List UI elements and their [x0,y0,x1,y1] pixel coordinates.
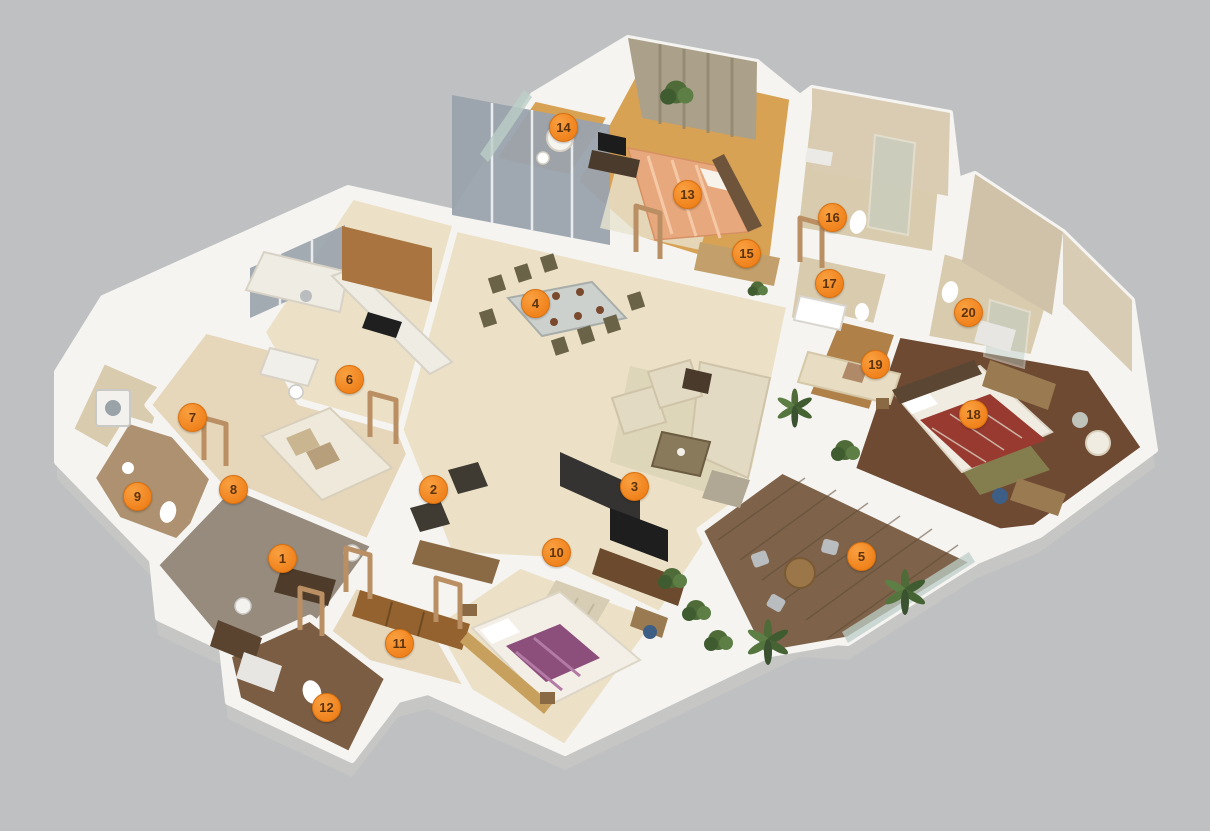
shower-glass-16 [868,135,915,235]
side-table [537,152,549,164]
kitchen-stool [289,385,303,399]
nightstand [462,604,477,616]
room-marker-2: 2 [419,475,448,504]
office-chair [992,488,1008,504]
room-marker-3: 3 [620,472,649,501]
room-marker-17: 17 [815,269,844,298]
nightstand [876,398,889,409]
room-marker-20: 20 [954,298,983,327]
floor-plan-scene: 1234567891011121314151617181920 [0,0,1210,831]
round-table [785,558,815,588]
room-marker-18: 18 [959,400,988,429]
toilet [855,303,869,321]
room-marker-5: 5 [847,542,876,571]
room-marker-1: 1 [268,544,297,573]
room-marker-19: 19 [861,350,890,379]
office-chair [643,625,657,639]
kitchen-sink [300,290,312,302]
room-marker-6: 6 [335,365,364,394]
bar-stool [235,598,251,614]
room-marker-14: 14 [549,113,578,142]
nightstand [540,692,555,704]
room-marker-16: 16 [818,203,847,232]
room-marker-10: 10 [542,538,571,567]
room-marker-7: 7 [178,403,207,432]
washbasin [122,462,134,474]
glass-table [1072,412,1088,428]
room-marker-13: 13 [673,180,702,209]
room-marker-15: 15 [732,239,761,268]
room-marker-9: 9 [123,482,152,511]
room-marker-11: 11 [385,629,414,658]
room-marker-4: 4 [521,289,550,318]
papasan-chair [1086,431,1110,455]
room-marker-12: 12 [312,693,341,722]
room-marker-8: 8 [219,475,248,504]
